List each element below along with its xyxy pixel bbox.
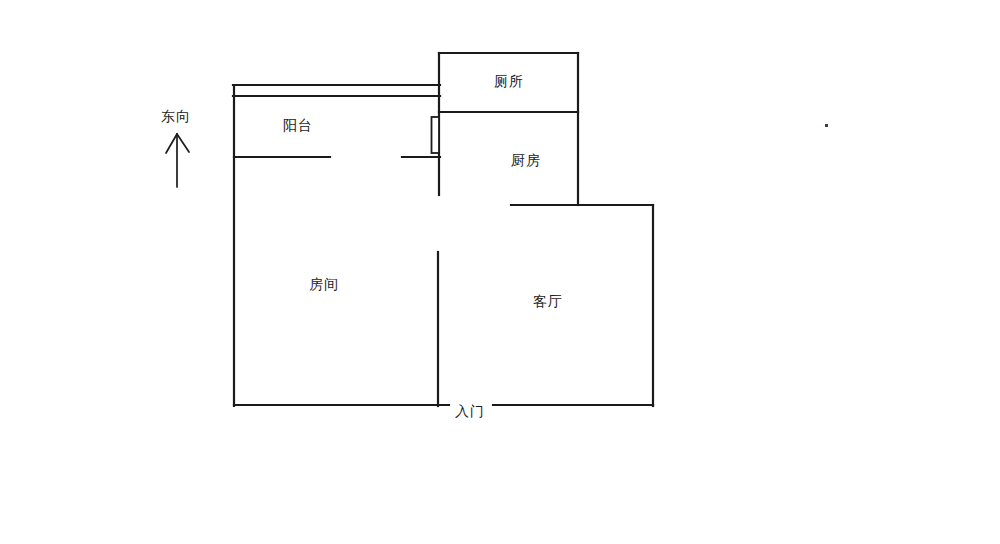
kitchen-label: 厨房 xyxy=(511,152,541,168)
compass-arrow-right-wing xyxy=(177,134,189,152)
compass-arrow xyxy=(166,134,189,187)
living-room-label: 客厅 xyxy=(533,293,563,309)
compass-arrow-left-wing xyxy=(166,134,177,153)
walls-group xyxy=(233,53,653,406)
floor-plan-svg: 东向 阳台 厕所 厨房 房间 客厅 入门 xyxy=(0,0,1000,544)
door-leaf xyxy=(432,117,440,153)
bedroom-label: 房间 xyxy=(309,276,339,292)
scan-artifact-dot xyxy=(825,124,828,127)
entrance-label: 入门 xyxy=(455,403,485,419)
toilet-label: 厕所 xyxy=(494,73,524,89)
compass-label: 东向 xyxy=(161,108,191,124)
floor-plan-canvas: 东向 阳台 厕所 厨房 房间 客厅 入门 xyxy=(0,0,1000,544)
balcony-label: 阳台 xyxy=(283,117,313,133)
